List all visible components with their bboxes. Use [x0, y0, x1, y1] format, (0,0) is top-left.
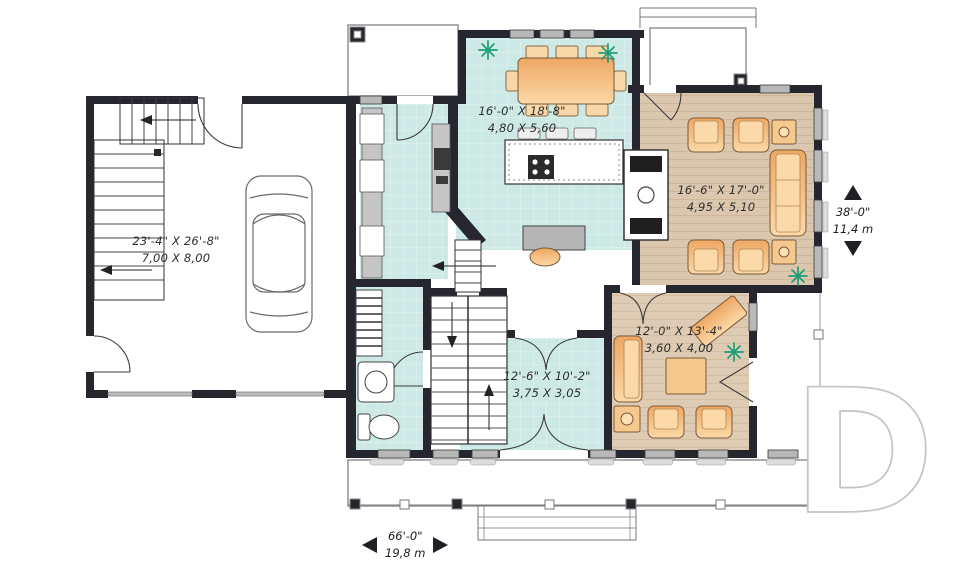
den-size-metric: 3,60 X 4,00	[599, 340, 759, 357]
armchair	[696, 406, 732, 438]
arrow-down-icon	[844, 241, 862, 256]
floor-plan: D 23'-4" X 26'-8" 7,00 X 8,00 16'-0" X 1…	[0, 0, 960, 569]
width-imperial: 66'-0"	[388, 529, 423, 543]
arrow-up-icon	[844, 185, 862, 200]
den-label: 12'-0" X 13'-4" 3,60 X 4,00	[599, 323, 759, 358]
width-dimension: 66'-0" 19,8 m	[362, 528, 448, 561]
garage-size-imperial: 23'-4" X 26'-8"	[96, 233, 256, 250]
sink	[358, 362, 394, 402]
garage-staircase	[94, 98, 204, 300]
side-table	[614, 406, 640, 432]
coffee-table	[666, 358, 706, 394]
den-size-imperial: 12'-0" X 13'-4"	[599, 323, 759, 340]
garage-label: 23'-4" X 26'-8" 7,00 X 8,00	[96, 233, 256, 268]
armchair	[688, 240, 724, 274]
width-metric: 19,8 m	[385, 546, 425, 560]
depth-imperial: 38'-0"	[836, 205, 871, 219]
kitchen-label: 16'-0" X 18'-8" 4,80 X 5,60	[442, 103, 602, 138]
living-size-metric: 4,95 X 5,10	[641, 199, 801, 216]
watermark-logo: D	[792, 352, 935, 553]
foyer-size-imperial: 12'-6" X 10'-2"	[467, 368, 627, 385]
garage-size-metric: 7,00 X 8,00	[96, 250, 256, 267]
toilet	[358, 414, 399, 440]
armchair	[648, 406, 684, 438]
armchair	[733, 240, 769, 274]
armchair	[688, 118, 724, 152]
floor-plan-drawing: D	[0, 0, 960, 569]
living-room-label: 16'-6" X 17'-0" 4,95 X 5,10	[641, 182, 801, 217]
foyer-label: 12'-6" X 10'-2" 3,75 X 3,05	[467, 368, 627, 403]
living-size-imperial: 16'-6" X 17'-0"	[641, 182, 801, 199]
desk	[523, 226, 585, 266]
depth-metric: 11,4 m	[833, 222, 873, 236]
foyer-size-metric: 3,75 X 3,05	[467, 385, 627, 402]
armchair	[733, 118, 769, 152]
depth-dimension: 38'-0" 11,4 m	[824, 185, 882, 256]
kitchen-size-metric: 4,80 X 5,60	[442, 120, 602, 137]
arrow-right-icon	[433, 537, 448, 553]
arrow-left-icon	[362, 537, 377, 553]
kitchen-size-imperial: 16'-0" X 18'-8"	[442, 103, 602, 120]
